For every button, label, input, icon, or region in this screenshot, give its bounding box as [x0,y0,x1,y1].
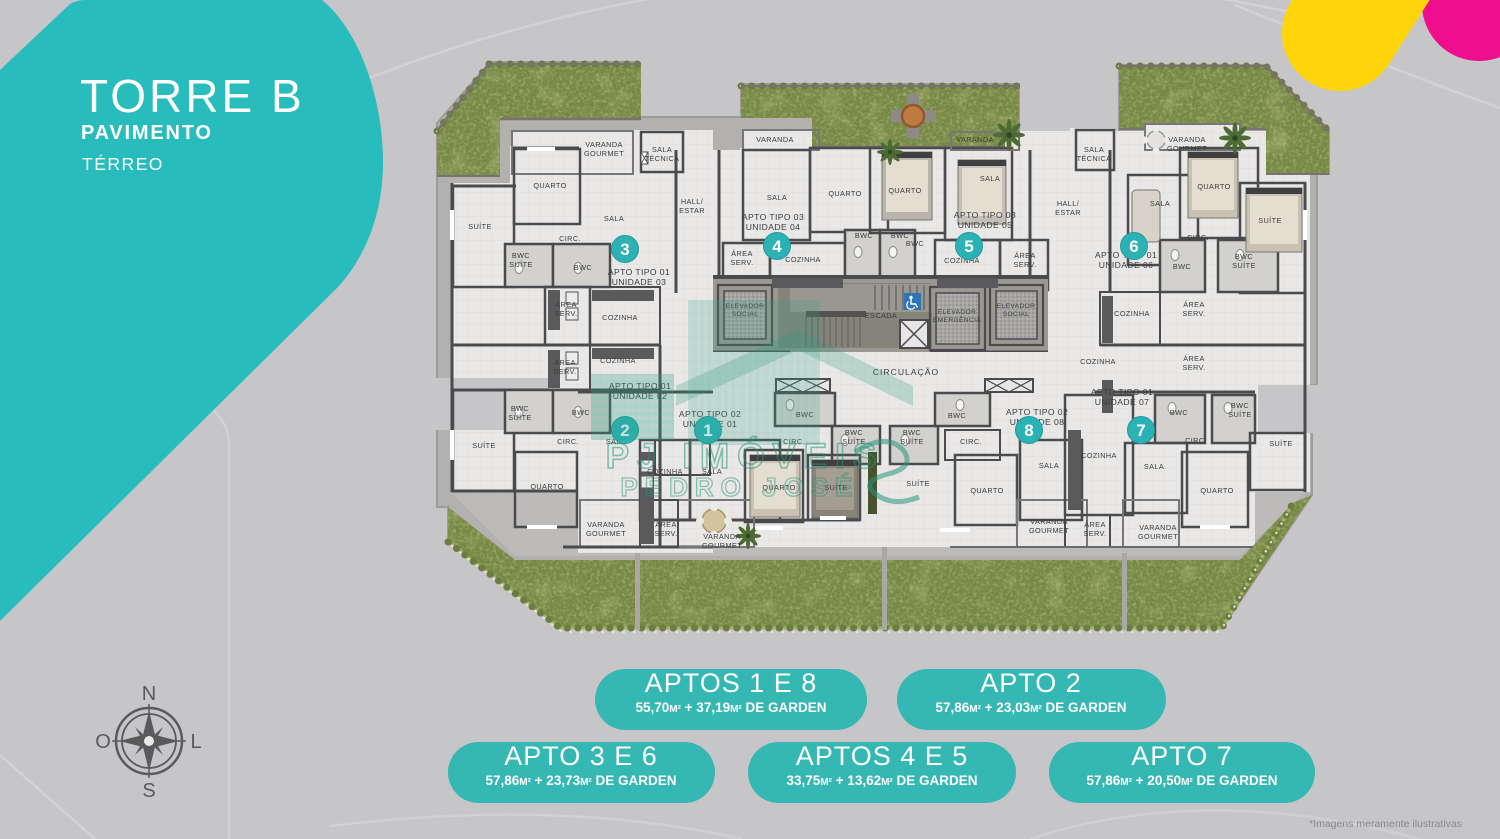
svg-text:COZINHA: COZINHA [785,255,821,264]
svg-text:BWC: BWC [572,408,590,417]
svg-text:VARANDA: VARANDA [756,135,794,144]
svg-text:BWC: BWC [948,411,966,420]
svg-text:VARANDAGOURMET: VARANDAGOURMET [1029,517,1069,535]
svg-text:ÁREASERV.: ÁREASERV. [1182,300,1205,318]
svg-text:SUÍTE: SUÍTE [472,441,496,450]
svg-text:CIRC.: CIRC. [559,234,581,243]
svg-text:BWC: BWC [574,263,592,272]
svg-text:SALA: SALA [1039,461,1059,470]
svg-text:QUARTO: QUARTO [970,486,1003,495]
svg-text:APTO TIPO 03UNIDADE 05: APTO TIPO 03UNIDADE 05 [954,210,1016,230]
svg-text:ESCADA: ESCADA [865,311,897,320]
svg-text:BWCSUÍTE: BWCSUÍTE [508,404,532,422]
svg-text:TÉRREO: TÉRREO [82,154,164,174]
svg-text:CIRC.: CIRC. [557,437,579,446]
svg-text:TORRE B: TORRE B [80,70,305,122]
svg-text:VARANDAGOURMET: VARANDAGOURMET [1167,135,1207,153]
svg-text:5: 5 [964,237,973,256]
svg-text:O: O [95,731,111,753]
svg-text:*Imagens meramente ilustrativa: *Imagens meramente ilustrativas [1309,818,1462,830]
svg-text:APTO 2: APTO 2 [980,668,1082,698]
svg-text:QUARTO: QUARTO [828,189,861,198]
svg-text:ELEVADOREMERGÊNCIA: ELEVADOREMERGÊNCIA [933,309,982,324]
svg-text:VARANDAGOURMET: VARANDAGOURMET [586,520,626,538]
svg-text:COZINHA: COZINHA [1080,357,1116,366]
svg-text:ÁREASERV.: ÁREASERV. [730,249,753,267]
svg-text:BWCSUÍTE: BWCSUÍTE [900,428,924,446]
svg-text:COZINHA: COZINHA [600,356,636,365]
svg-text:BWC: BWC [906,239,924,248]
svg-text:APTO 7: APTO 7 [1131,741,1233,771]
svg-text:VARANDAGOURMET: VARANDAGOURMET [1138,523,1178,541]
svg-text:HALL/ESTAR: HALL/ESTAR [1055,199,1081,217]
svg-text:ÁREASERV.: ÁREASERV. [654,520,677,538]
svg-text:APTO TIPO 01UNIDADE 07: APTO TIPO 01UNIDADE 07 [1091,387,1153,407]
svg-text:S: S [142,780,155,802]
svg-text:APTOS 4 E 5: APTOS 4 E 5 [796,741,969,771]
svg-text:APTO TIPO 03UNIDADE 04: APTO TIPO 03UNIDADE 04 [742,212,804,232]
svg-text:ÁREASERV.: ÁREASERV. [553,358,576,376]
svg-text:SUÍTE: SUÍTE [1258,216,1282,225]
svg-text:ÁREASERV.: ÁREASERV. [554,300,577,318]
svg-text:COZINHA: COZINHA [602,313,638,322]
svg-text:BWCSUÍTE: BWCSUÍTE [1228,401,1252,419]
svg-text:CIRC.: CIRC. [1185,436,1207,445]
svg-text:VARANDAGOURMET: VARANDAGOURMET [584,140,624,158]
svg-text:QUARTO: QUARTO [888,186,921,195]
svg-text:BWC: BWC [855,231,873,240]
svg-text:APTO TIPO 01UNIDADE 03: APTO TIPO 01UNIDADE 03 [608,267,670,287]
svg-text:HALL/ESTAR: HALL/ESTAR [679,197,705,215]
svg-text:4: 4 [772,237,782,256]
svg-text:8: 8 [1024,421,1033,440]
svg-text:BWCSUÍTE: BWCSUÍTE [1232,252,1256,270]
svg-text:SUÍTE: SUÍTE [468,222,492,231]
svg-text:L: L [190,731,201,753]
svg-text:SALA: SALA [604,214,624,223]
svg-text:VARANDAGOURMET: VARANDAGOURMET [702,532,742,550]
svg-text:CIRC.: CIRC. [1187,233,1209,242]
svg-text:ÁREASERV.: ÁREASERV. [1013,251,1036,269]
svg-text:COZINHA: COZINHA [1081,451,1117,460]
svg-text:QUARTO: QUARTO [533,181,566,190]
svg-text:CIRC.: CIRC. [960,437,982,446]
svg-text:SALA: SALA [767,193,787,202]
svg-text:BWC: BWC [1173,262,1191,271]
svg-text:SALA: SALA [1144,462,1164,471]
svg-text:ÁREASERV.: ÁREASERV. [1083,520,1106,538]
svg-text:SALA: SALA [980,174,1000,183]
svg-text:7: 7 [1136,421,1145,440]
svg-text:QUARTO: QUARTO [1200,486,1233,495]
svg-text:SUÍTE: SUÍTE [906,479,930,488]
svg-text:COZINHA: COZINHA [1114,309,1150,318]
svg-text:N: N [142,683,156,705]
svg-text:QUARTO: QUARTO [530,482,563,491]
svg-text:BWC: BWC [1170,408,1188,417]
svg-text:6: 6 [1129,237,1138,256]
svg-text:PEDRO JOSÉ: PEDRO JOSÉ [620,472,859,502]
svg-text:QUARTO: QUARTO [1197,182,1230,191]
svg-text:PJ IMÓVEIS: PJ IMÓVEIS [606,436,884,476]
svg-text:BWCSUÍTE: BWCSUÍTE [509,251,533,269]
svg-text:APTO 3 E 6: APTO 3 E 6 [504,741,658,771]
svg-text:SALA: SALA [1150,199,1170,208]
svg-text:3: 3 [620,240,629,259]
svg-text:PAVIMENTO: PAVIMENTO [81,122,213,144]
svg-text:ÁREASERV.: ÁREASERV. [1182,354,1205,372]
svg-text:APTOS 1 E 8: APTOS 1 E 8 [645,668,818,698]
svg-text:SUÍTE: SUÍTE [1269,439,1293,448]
svg-text:VARANDA: VARANDA [956,135,994,144]
